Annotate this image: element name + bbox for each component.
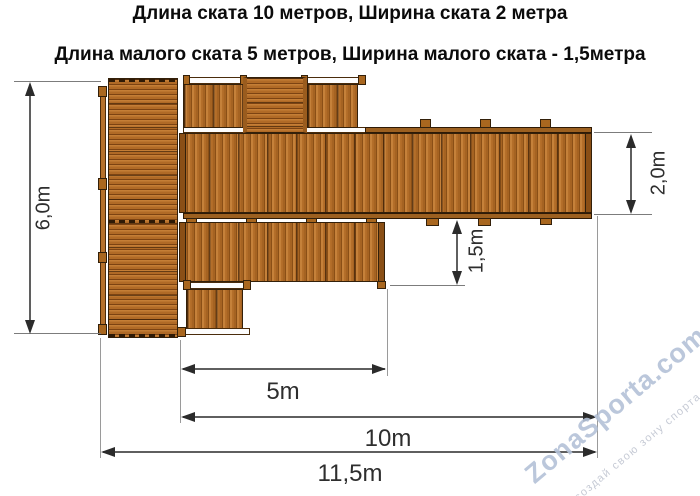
top-deck-section-middle — [243, 77, 307, 133]
dim-label-small-ramp-width: 1,5m — [466, 229, 489, 273]
dim-tick — [594, 132, 652, 133]
bottom-deck-section — [186, 289, 243, 329]
dim-arrow-11-5m — [103, 451, 595, 453]
left-platform-deck — [108, 78, 178, 338]
extension-line — [100, 338, 101, 458]
arrowhead-down — [626, 200, 636, 214]
fence-post — [177, 327, 186, 337]
arrowhead-up — [25, 82, 35, 96]
arrowhead-up — [626, 134, 636, 148]
extension-line — [387, 289, 388, 376]
dim-arrow-6m — [29, 86, 31, 329]
arrowhead-down — [25, 320, 35, 334]
fence-post — [98, 86, 107, 97]
dim-label-total-length: 11,5m — [318, 460, 383, 488]
fence-post — [377, 281, 386, 289]
arrowhead-right — [372, 364, 386, 374]
dim-arrow-10m — [183, 416, 595, 418]
fence-post — [540, 218, 552, 225]
fence-post — [358, 75, 366, 85]
arrowhead-up — [452, 220, 462, 234]
fence-post — [98, 178, 107, 190]
title-line-2: Длина малого ската 5 метров, Ширина мало… — [0, 44, 700, 66]
arrowhead-left — [101, 447, 115, 457]
top-deck-section-right — [307, 84, 358, 128]
top-guard-rail — [301, 77, 366, 84]
arrowhead-down — [452, 271, 462, 285]
dim-arrow-5m — [183, 368, 385, 370]
fence-post — [98, 252, 107, 263]
fence-post — [480, 119, 491, 128]
arrowhead-left — [181, 412, 195, 422]
dim-label-main-ramp-width: 2,0m — [648, 151, 671, 195]
fence-post — [426, 218, 439, 226]
extension-line — [180, 340, 181, 423]
dim-label-main-ramp-length: 10m — [365, 425, 412, 453]
left-edge-rail — [100, 86, 106, 335]
small-ramp-deck — [179, 222, 385, 282]
fence-post — [243, 280, 251, 290]
top-deck-section-left — [183, 84, 245, 128]
dim-label-small-ramp-length: 5m — [266, 378, 299, 406]
arrowhead-left — [181, 364, 195, 374]
dashed-edge-mid — [109, 220, 177, 223]
dashed-edge-bottom — [109, 334, 177, 337]
main-ramp-deck — [179, 133, 592, 213]
small-ramp-bottom-rail — [183, 282, 251, 289]
bottom-guard-rail — [179, 328, 250, 335]
dashed-edge-top — [109, 79, 177, 82]
top-guard-rail — [183, 77, 247, 84]
main-ramp-bottom-rail — [183, 213, 592, 219]
fence-post — [540, 119, 551, 128]
diagram-canvas: Длина ската 10 метров, Ширина ската 2 ме… — [0, 0, 700, 496]
dim-tick — [594, 214, 652, 215]
fence-post — [420, 119, 431, 128]
fence-post — [478, 218, 491, 226]
dim-tick — [390, 285, 465, 286]
dim-label-total-height: 6,0m — [33, 186, 56, 230]
title-line-1: Длина ската 10 метров, Ширина ската 2 ме… — [0, 3, 700, 25]
